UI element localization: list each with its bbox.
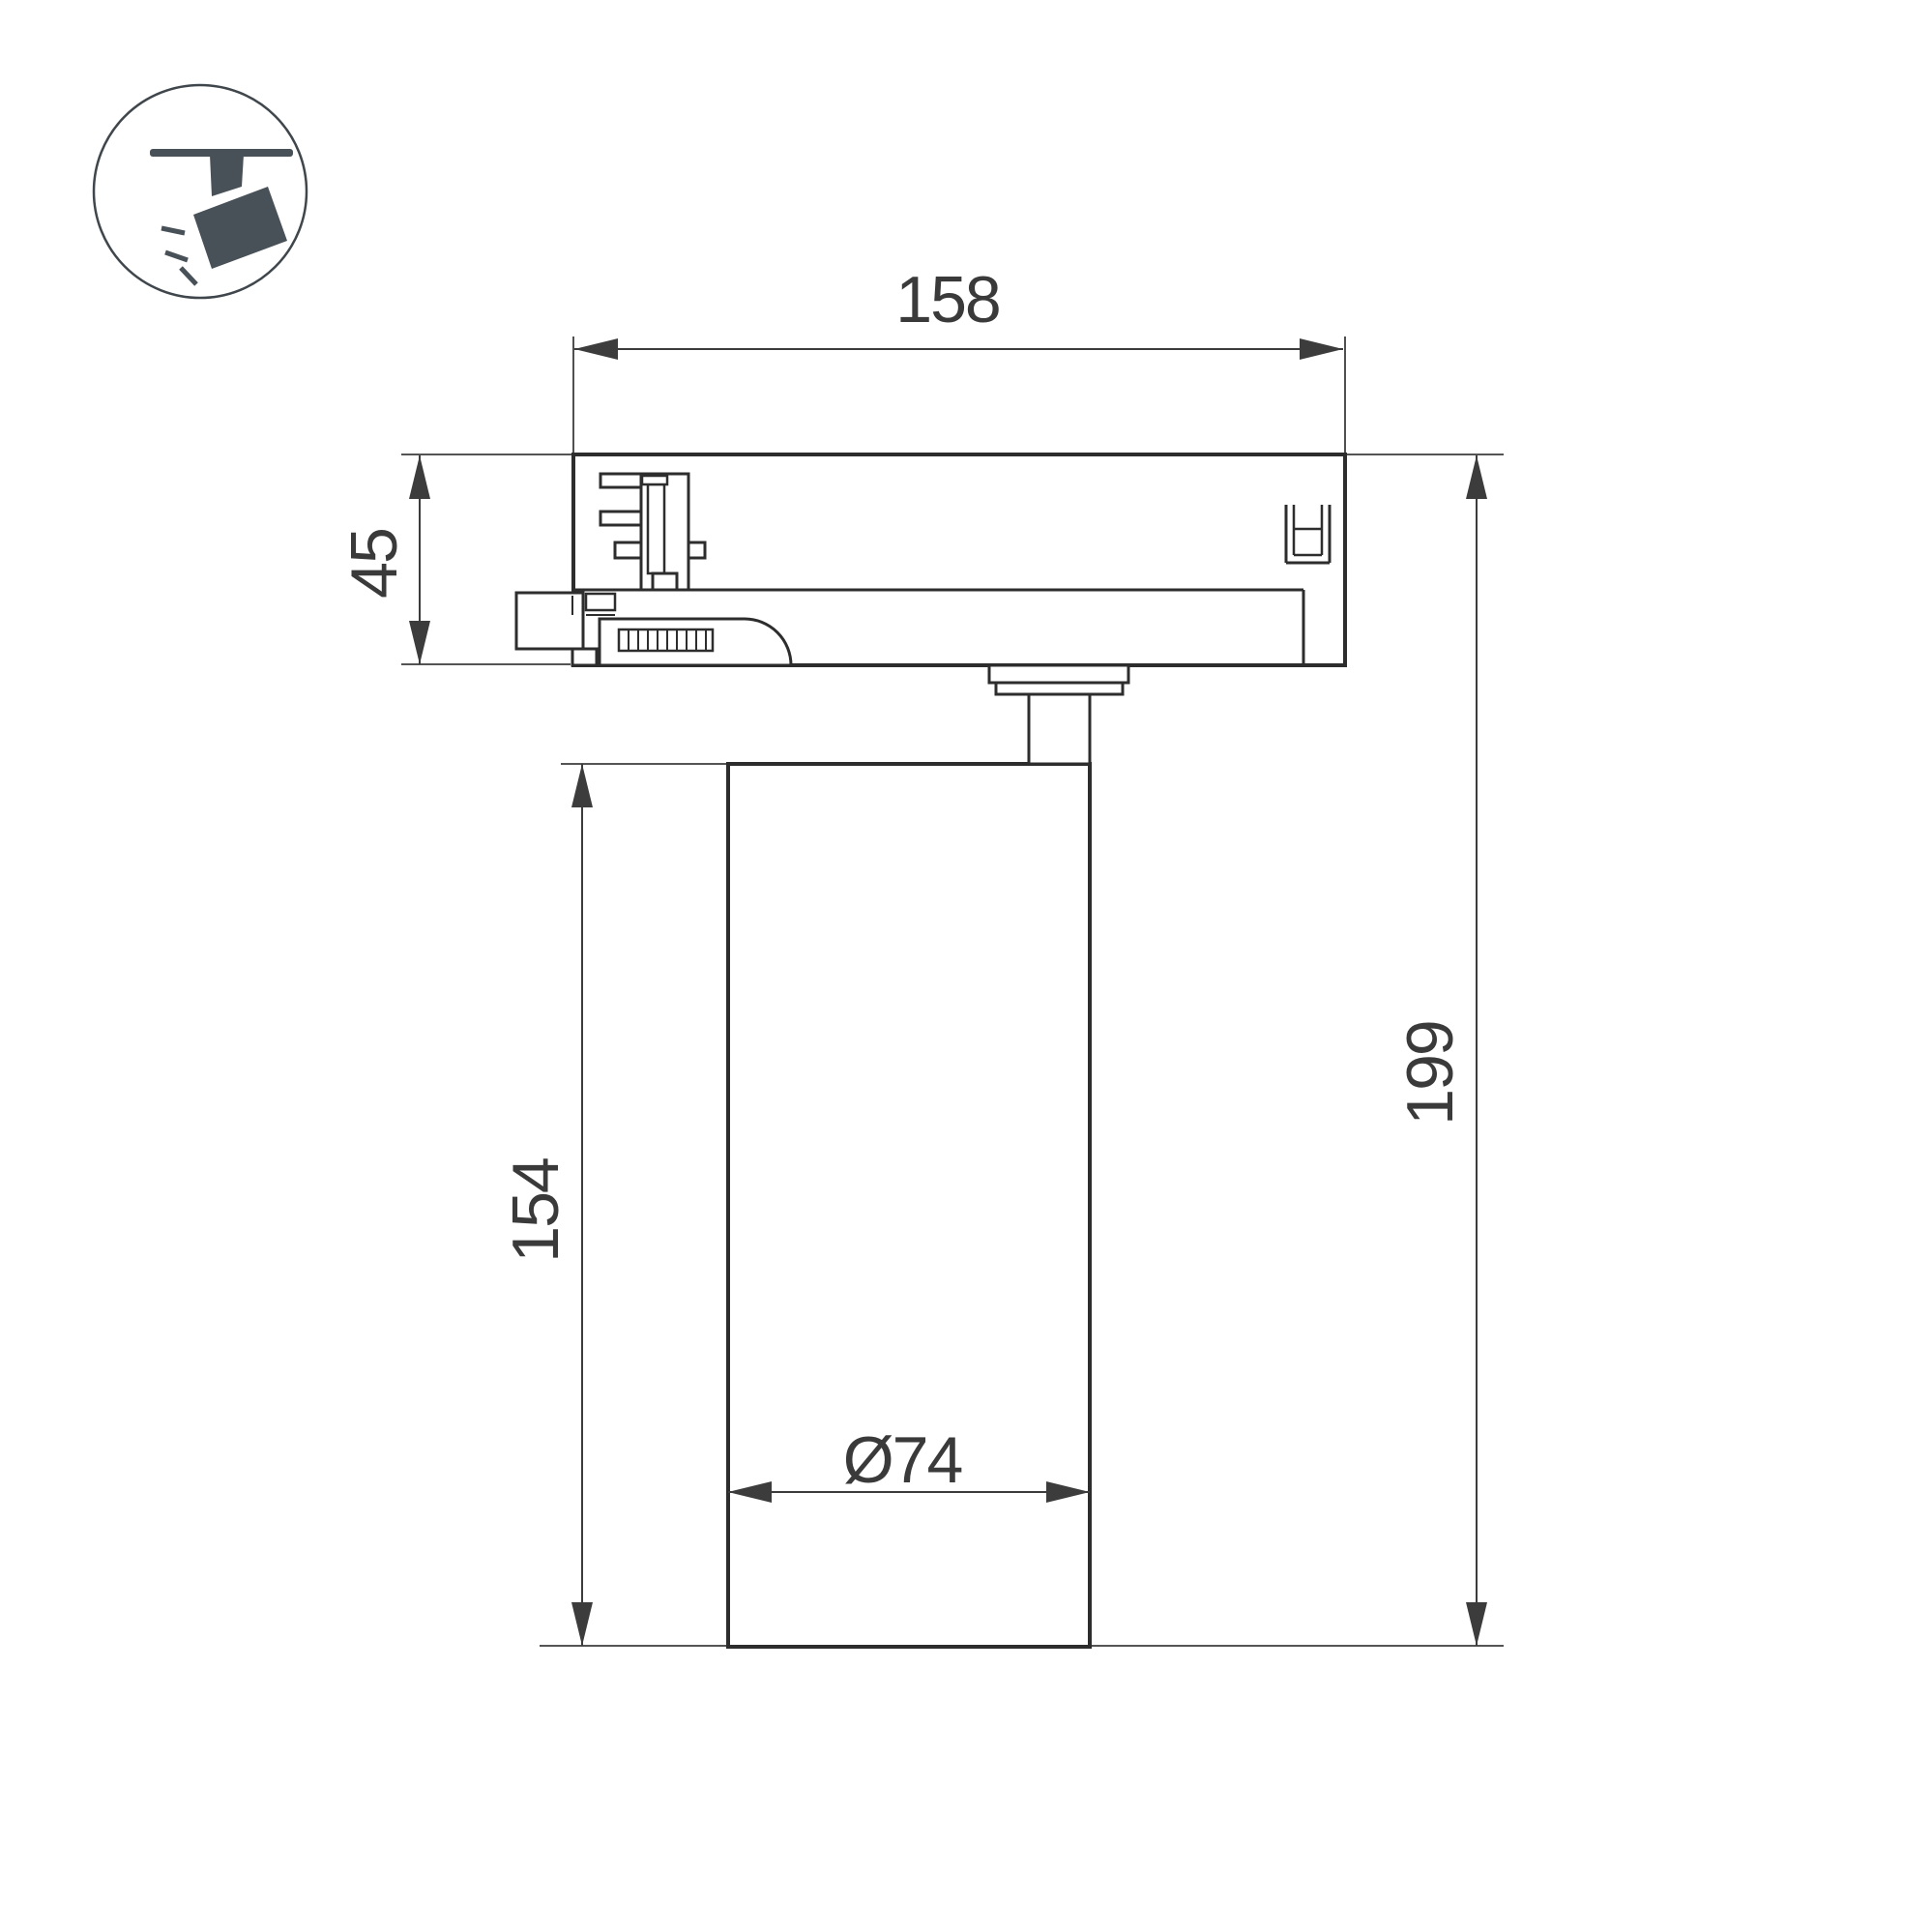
dim-74-label: Ø74 — [843, 1423, 962, 1497]
dim-158-label: 158 — [895, 263, 999, 337]
arrowhead-left — [574, 338, 618, 360]
contact-pin — [648, 484, 664, 573]
arrowhead-right — [1300, 338, 1343, 360]
stem — [1029, 694, 1090, 764]
mount-stem — [989, 665, 1128, 764]
arrowhead-down — [571, 1602, 593, 1646]
contact-prong-middle — [600, 512, 641, 525]
flange-step-1 — [989, 665, 1128, 683]
cylinder-outline — [728, 764, 1090, 1647]
dimension-track-width: 158 — [573, 263, 1345, 453]
dim-45-label: 45 — [337, 529, 411, 599]
contact-prong-lower — [615, 542, 641, 558]
technical-drawing-canvas: 158 45 154 199 Ø74 — [0, 0, 1932, 1932]
dim-199-label: 199 — [1393, 1021, 1467, 1125]
track-light-dimension-drawing: 158 45 154 199 Ø74 — [0, 0, 1932, 1932]
arrowhead-down — [1466, 1602, 1487, 1646]
track-spotlight-icon — [94, 85, 307, 298]
lamp-body — [728, 764, 1090, 1647]
arrowhead-down — [409, 621, 430, 664]
contact-prong-right — [688, 542, 705, 558]
icon-circle — [94, 85, 307, 298]
arrowhead-up — [409, 455, 430, 499]
latch-foot — [572, 649, 597, 665]
arrowhead-up — [1466, 455, 1487, 499]
dim-154-label: 154 — [499, 1158, 572, 1263]
contact-pin-cap — [642, 476, 667, 484]
adjustment-grip-housing — [600, 619, 791, 665]
contact-prong-top — [600, 474, 641, 487]
dimension-body-height: 154 — [499, 764, 726, 1646]
contact-foot — [653, 573, 677, 590]
flange-step-2 — [996, 683, 1123, 694]
arrowhead-up — [571, 764, 593, 807]
grip-ribs-frame — [619, 629, 713, 651]
latch-spring — [586, 594, 615, 610]
